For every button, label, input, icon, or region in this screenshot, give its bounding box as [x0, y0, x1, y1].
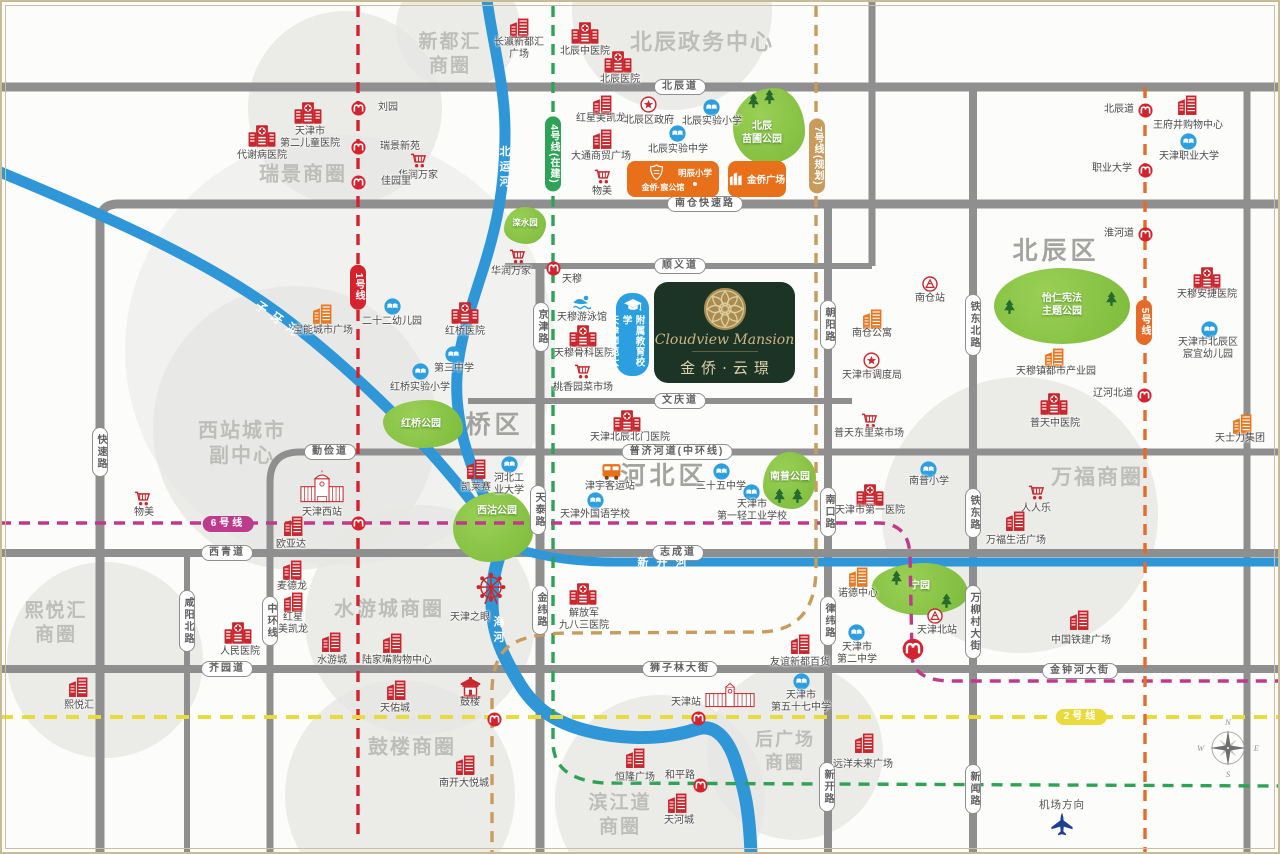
poi-label: 陆家嘴购物中心 [362, 655, 432, 667]
park-tree-icon [747, 93, 760, 109]
commercial-building-icon [382, 633, 403, 654]
metro-line-badge: 7号线(规划) [809, 118, 825, 193]
sister-project-label: 金侨·宸公馆 [632, 182, 694, 193]
government-icon [640, 96, 657, 113]
commercial-building-icon [1005, 511, 1026, 532]
poi-label: 和平路 [665, 770, 695, 782]
school-icon [793, 673, 810, 690]
school-icon [1180, 133, 1197, 150]
shield-icon [649, 164, 664, 181]
poi-label: 宝能城市广场 [293, 325, 353, 337]
business-circle-label: 滨江道 商圈 [588, 791, 651, 839]
brand-divider [692, 351, 758, 352]
poi-label: 天穆骨科医院 [554, 348, 614, 360]
park-label: 南普公园 [770, 471, 810, 484]
poi-label: 天津市 第二儿童医院 [280, 126, 340, 150]
hospital-icon [224, 621, 252, 645]
sister-project-badge: 金侨·宸公馆 明辰小学 [627, 161, 719, 197]
metro-station-icon [351, 175, 366, 190]
metro-station-icon [546, 261, 561, 276]
commercial-building-icon [848, 567, 869, 588]
poi-label: 天津西站 [302, 507, 342, 519]
shopping-cart-icon [861, 412, 878, 429]
brand-medallion-icon [703, 287, 747, 331]
metro-station-icon [902, 638, 924, 660]
business-circle-label: 瑞景商圈 [259, 163, 347, 188]
school-note-label: 明辰小学 [678, 167, 712, 179]
road-name-label: 金钟河大街 [1042, 663, 1118, 679]
poi-label: 瑞景新苑 [380, 141, 420, 153]
poi-label: 熙悦汇 [64, 700, 94, 712]
school-icon [587, 492, 604, 509]
river-name-label: 海河 [490, 616, 506, 646]
poi-label: 华润万家 [491, 266, 531, 278]
poi-label: 凯莱赛 [461, 482, 491, 494]
poi-label: 北辰道 [1104, 104, 1134, 116]
school-icon [445, 346, 462, 363]
poi-label: 北辰实验小学 [682, 116, 742, 128]
poi-label: 红桥医院 [445, 326, 485, 338]
poi-label: 天津北站 [917, 625, 957, 637]
school-icon [501, 456, 518, 473]
road-name-label: 芥园道 [201, 661, 253, 677]
metro-station-icon [1137, 388, 1152, 403]
river-name-label: 北运河 [496, 146, 512, 191]
metro-station-icon [351, 140, 366, 155]
business-circle-label: 鼓楼商圈 [368, 736, 456, 761]
poi-label: 桃香园菜市场 [553, 382, 613, 394]
shopping-cart-icon [1028, 484, 1045, 501]
commercial-building-icon [1232, 414, 1253, 435]
park-tree-icon [1003, 299, 1016, 315]
road-name-label-vertical: 律纬路 [820, 596, 836, 646]
commercial-building-icon [592, 129, 613, 150]
metro-station-icon [351, 101, 366, 116]
business-circle [7, 562, 203, 758]
swimming-pool-icon [572, 294, 593, 312]
poi-label: 三十五中学 [696, 481, 746, 493]
compass-north-label: N [1225, 717, 1231, 727]
poi-label: 刘园 [378, 102, 398, 114]
hospital-icon [613, 409, 641, 433]
poi-label: 红星 美凯龙 [278, 612, 308, 636]
park-label: 北辰 苗圃公园 [742, 120, 782, 146]
road-name-label-vertical: 铁东北路 [965, 294, 981, 356]
district-label: 北辰区 [1012, 231, 1099, 267]
hospital-icon [856, 483, 884, 507]
metro-station-icon [1138, 163, 1153, 178]
jinqiao-plaza-badge: 金侨广场 [728, 161, 786, 197]
poi-label: 物美 [134, 507, 154, 519]
poi-label: 恒隆广场 [615, 772, 655, 784]
park-label: 怡仁宪法 主题公园 [1042, 292, 1082, 318]
poi-label: 远洋未来广场 [833, 759, 893, 771]
poi-label: 物美 [592, 186, 612, 198]
commercial-building-icon [386, 680, 407, 701]
building-bars-icon [729, 172, 743, 186]
shopping-cart-icon [574, 363, 591, 380]
poi-label: 天津市 第五十七中学 [771, 690, 831, 714]
metro-line-badge: 5号线 [1136, 300, 1152, 345]
poi-label: 天津市 第二中学 [837, 642, 877, 666]
poi-label: 普天东里菜市场 [834, 428, 904, 440]
metro-line-badge: 2号线 [1056, 709, 1107, 725]
metro-station-icon [691, 711, 706, 726]
poi-label: 解放军 九八三医院 [559, 608, 609, 632]
poi-label: 北辰区政府 [624, 115, 674, 127]
school-dot-marker [693, 182, 697, 186]
graduation-cap-icon [623, 298, 643, 313]
poi-label: 红桥实验小学 [390, 382, 450, 394]
poi-label: 南仓公寓 [852, 328, 892, 340]
national-rail-station-icon [922, 276, 938, 292]
metro-line-badge: 6号线 [203, 516, 254, 532]
commercial-building-icon [862, 309, 883, 330]
commercial-building-icon [312, 304, 333, 325]
metro-station-icon [351, 516, 366, 531]
road-name-label: 狮子林大街 [642, 661, 718, 677]
poi-label: 淮河道 [1104, 228, 1134, 240]
poi-label: 河北工 业大学 [494, 473, 524, 497]
poi-label: 第三中学 [434, 363, 474, 375]
hospital-icon [451, 301, 479, 325]
commercial-building-icon [625, 748, 646, 769]
hospital-icon [1040, 392, 1068, 416]
compass-east-label: E [1254, 743, 1259, 753]
business-circle-label: 万福商圈 [1051, 465, 1143, 491]
business-circle-label: 西站城市 副中心 [198, 419, 286, 469]
business-circle-label: 北辰政务中心 [630, 28, 774, 56]
poi-label: 天津之眼 [450, 612, 490, 624]
project-logo-panel: Cloudview Mansion 金侨·云璟 [654, 282, 795, 383]
poi-label: 王府井购物中心 [1153, 120, 1223, 132]
school-icon [1201, 321, 1218, 338]
school-icon [412, 363, 429, 380]
poi-label: 天津市第一医院 [835, 505, 905, 517]
poi-label: 辽河北道 [1093, 388, 1133, 400]
hospital-icon [569, 324, 597, 348]
poi-label: 北辰中医院 [560, 46, 610, 58]
road-name-label-vertical: 中环线 [262, 596, 278, 646]
park-tree-icon [890, 570, 903, 586]
poi-label: 友谊新都百货 [770, 657, 830, 669]
road-name-label-vertical: 快速路 [92, 427, 108, 477]
hospital-icon [1193, 266, 1221, 290]
hospital-icon [294, 101, 322, 125]
poi-label: 人民医院 [220, 646, 260, 658]
poi-label: 南开大悦城 [439, 778, 489, 790]
park-tree-icon [763, 89, 776, 105]
hospital-icon [604, 50, 632, 74]
commercial-building-icon [790, 634, 811, 655]
park-label: 西沽公园 [477, 505, 517, 518]
shopping-cart-icon [594, 168, 611, 185]
road-name-label-vertical: 新闻路 [965, 764, 981, 814]
school-icon [713, 463, 730, 480]
poi-label: 天河城 [664, 815, 694, 827]
metro-station-icon [487, 712, 502, 727]
school-icon [669, 125, 686, 142]
poi-label: 职业大学 [1092, 163, 1132, 175]
airport-direction: 机场方向 [1030, 797, 1094, 841]
poi-label: 天士力集团 [1215, 433, 1265, 445]
poi-label: 北辰医院 [600, 74, 640, 86]
park-label: 滦水园 [512, 217, 538, 228]
river-name-label: 新开河 [638, 554, 695, 570]
road-name-label: 北辰道 [654, 79, 706, 95]
park-tree-icon [940, 593, 953, 609]
poi-label: 佳园里 [381, 176, 411, 188]
compass-west-label: W [1197, 743, 1204, 753]
commercial-building-icon [1069, 610, 1090, 631]
metro-station-icon [1138, 227, 1153, 242]
brand-name-english: Cloudview Mansion [655, 332, 795, 348]
school-icon [743, 484, 760, 501]
poi-label: 普天中医院 [1030, 418, 1080, 430]
business-circle-label: 熙悦汇 商圈 [24, 599, 87, 647]
education-cluster-badge: 天津师范大学 附属教育校群 [616, 293, 649, 376]
location-map: Cloudview Mansion 金侨·云璟 天津师范大学 附属教育校群 金侨… [0, 0, 1280, 854]
school-icon [384, 298, 401, 315]
shopping-cart-icon [410, 152, 427, 169]
park-area [453, 492, 533, 562]
road-name-label-vertical: 金纬路 [532, 585, 548, 635]
poi-label: 红星美凯龙 [576, 113, 626, 125]
compass-rose: N E S W [1199, 719, 1257, 777]
poi-label: 二十二幼儿园 [362, 316, 422, 328]
poi-label: 万福生活广场 [986, 535, 1046, 547]
poi-label: 天津站 [671, 697, 701, 709]
government-icon [863, 352, 880, 369]
compass-south-label: S [1226, 769, 1230, 779]
poi-label: 长瀛新都汇 广场 [494, 37, 544, 61]
railway-terminal-icon [705, 682, 755, 708]
park-label: 红桥公园 [401, 418, 441, 431]
road-name-label: 文庆道 [654, 393, 706, 409]
road-name-label-vertical: 铁东路 [965, 488, 981, 538]
road-name-label-vertical: 南口路 [820, 487, 836, 537]
poi-label: 天穆安捷医院 [1177, 289, 1237, 301]
school-icon [920, 461, 937, 478]
railway-station-building-icon [300, 470, 344, 506]
road-name-label: 西青道 [201, 545, 253, 561]
road-name-label-vertical: 天泰路 [530, 485, 546, 535]
metro-station-icon [1138, 103, 1153, 118]
shopping-cart-icon [134, 490, 151, 507]
business-circle-label: 水游城商圈 [334, 598, 444, 623]
road-name-label-vertical: 万柳村大街 [965, 585, 981, 659]
road-name-label: 勤俭道 [304, 444, 356, 460]
shopping-cart-icon [509, 248, 526, 265]
poi-label: 欧亚达 [276, 539, 306, 551]
national-rail-station-icon [927, 608, 943, 624]
school-icon [848, 624, 865, 641]
ferris-wheel-icon [475, 571, 507, 606]
commercial-building-icon [854, 733, 875, 754]
poi-label: 天津市北辰区 宸宜幼儿园 [1178, 337, 1238, 361]
airport-direction-label: 机场方向 [1030, 797, 1094, 812]
poi-label: 天佑城 [380, 703, 410, 715]
road-name-label-vertical: 咸阳北路 [179, 590, 195, 652]
poi-label: 南普小学 [909, 476, 949, 488]
poi-label: 天津市 第一轻工业学校 [717, 499, 787, 523]
business-circle-label: 后广场 商圈 [755, 729, 815, 774]
airplane-icon [1050, 812, 1074, 836]
hospital-icon [248, 124, 276, 148]
road-name-label-vertical: 朝阳路 [820, 300, 836, 350]
poi-label: 天津职业大学 [1159, 151, 1219, 163]
bus-station-icon [602, 463, 621, 480]
park-tree-icon [791, 488, 804, 504]
commercial-building-icon [283, 516, 304, 537]
metro-line-badge: 4号线(在建) [545, 116, 561, 191]
commercial-building-icon [1177, 95, 1198, 116]
commercial-building-icon [455, 755, 476, 776]
commercial-building-icon [667, 793, 688, 814]
metro-line-badge: 1号线 [350, 265, 366, 310]
poi-label: 天津外国语学校 [560, 509, 630, 521]
poi-label: 北辰实验中学 [648, 144, 708, 156]
road-name-label: 顺义道 [654, 258, 706, 274]
poi-label: 诺德中心 [838, 588, 878, 600]
brand-name-chinese: 金侨·云璟 [674, 357, 775, 378]
poi-label: 人人乐 [1021, 503, 1051, 515]
school-icon [703, 99, 720, 116]
poi-label: 鼓楼 [460, 697, 480, 709]
business-circle-label: 新都汇 商圈 [418, 30, 481, 78]
poi-label: 大通商贸广场 [571, 151, 631, 163]
road-name-label: 普济河道(中环线) [622, 444, 733, 460]
education-cluster-label: 天津师范大学 附属教育校群 [607, 315, 659, 376]
commercial-building-icon [509, 18, 530, 39]
poi-label: 水游城 [317, 655, 347, 667]
poi-label: 天津北辰北门医院 [590, 432, 670, 444]
commercial-building-icon [282, 560, 303, 581]
poi-label: 南仓站 [915, 293, 945, 305]
commercial-building-icon [283, 592, 304, 613]
poi-label: 中国铁建广场 [1051, 635, 1111, 647]
jinqiao-plaza-label: 金侨广场 [747, 172, 785, 186]
poi-label: 代谢病医院 [237, 150, 287, 162]
commercial-building-icon [68, 677, 89, 698]
hospital-icon [569, 582, 597, 606]
poi-label: 天穆游泳馆 [557, 312, 607, 324]
hospital-icon [571, 21, 599, 45]
park-label: 宁园 [910, 580, 930, 593]
poi-label: 天津市调度局 [842, 370, 902, 382]
poi-label: 天穆镇都市产业园 [1016, 366, 1096, 378]
park-tree-icon [1105, 291, 1118, 307]
commercial-building-icon [321, 632, 342, 653]
road-name-label-vertical: 京津路 [533, 302, 549, 352]
poi-label: 天穆 [562, 274, 582, 286]
commercial-building-icon [466, 459, 487, 480]
road-name-label: 南仓快速路 [667, 196, 743, 212]
